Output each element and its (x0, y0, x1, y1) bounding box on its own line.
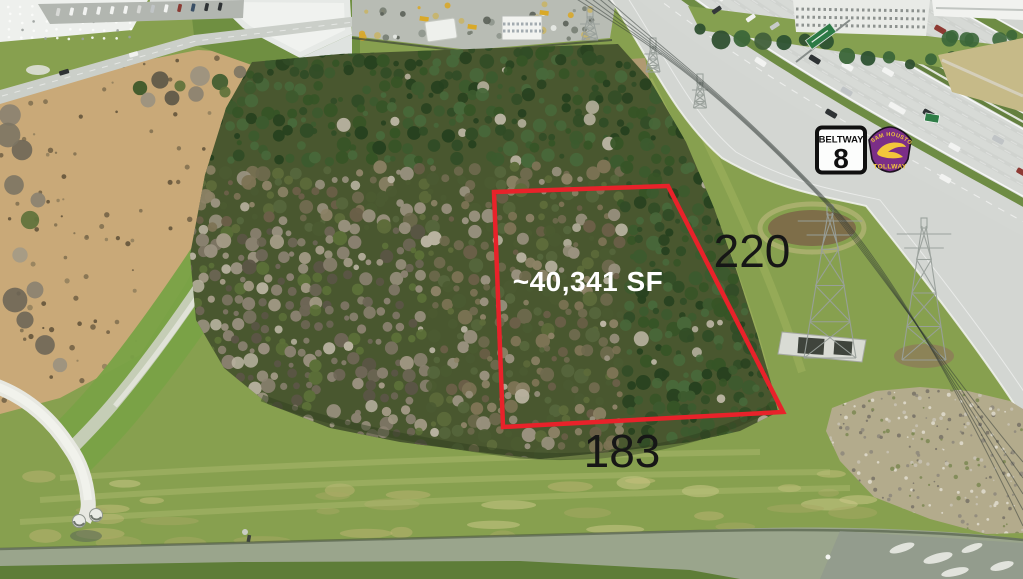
dimension-right: 220 (714, 225, 791, 277)
white-tent (425, 18, 457, 42)
tollway-shield-bottom-text: TOLLWAY (873, 164, 907, 171)
small-pond (26, 65, 50, 75)
dimension-bottom: 183 (584, 425, 661, 477)
area-label: ~40,341 SF (513, 266, 664, 297)
white-bird (826, 555, 831, 560)
beltway-8-shield: BELTWAY 8 (817, 128, 865, 175)
office-building (502, 16, 542, 40)
aerial-photo: ~40,341 SF 220 183 BELTWAY 8 SAM HOUSTON… (0, 0, 1023, 579)
aerial-photo-canvas: ~40,341 SF 220 183 BELTWAY 8 SAM HOUSTON… (0, 0, 1023, 579)
beltway-number: 8 (833, 143, 849, 174)
outfall (242, 529, 248, 535)
